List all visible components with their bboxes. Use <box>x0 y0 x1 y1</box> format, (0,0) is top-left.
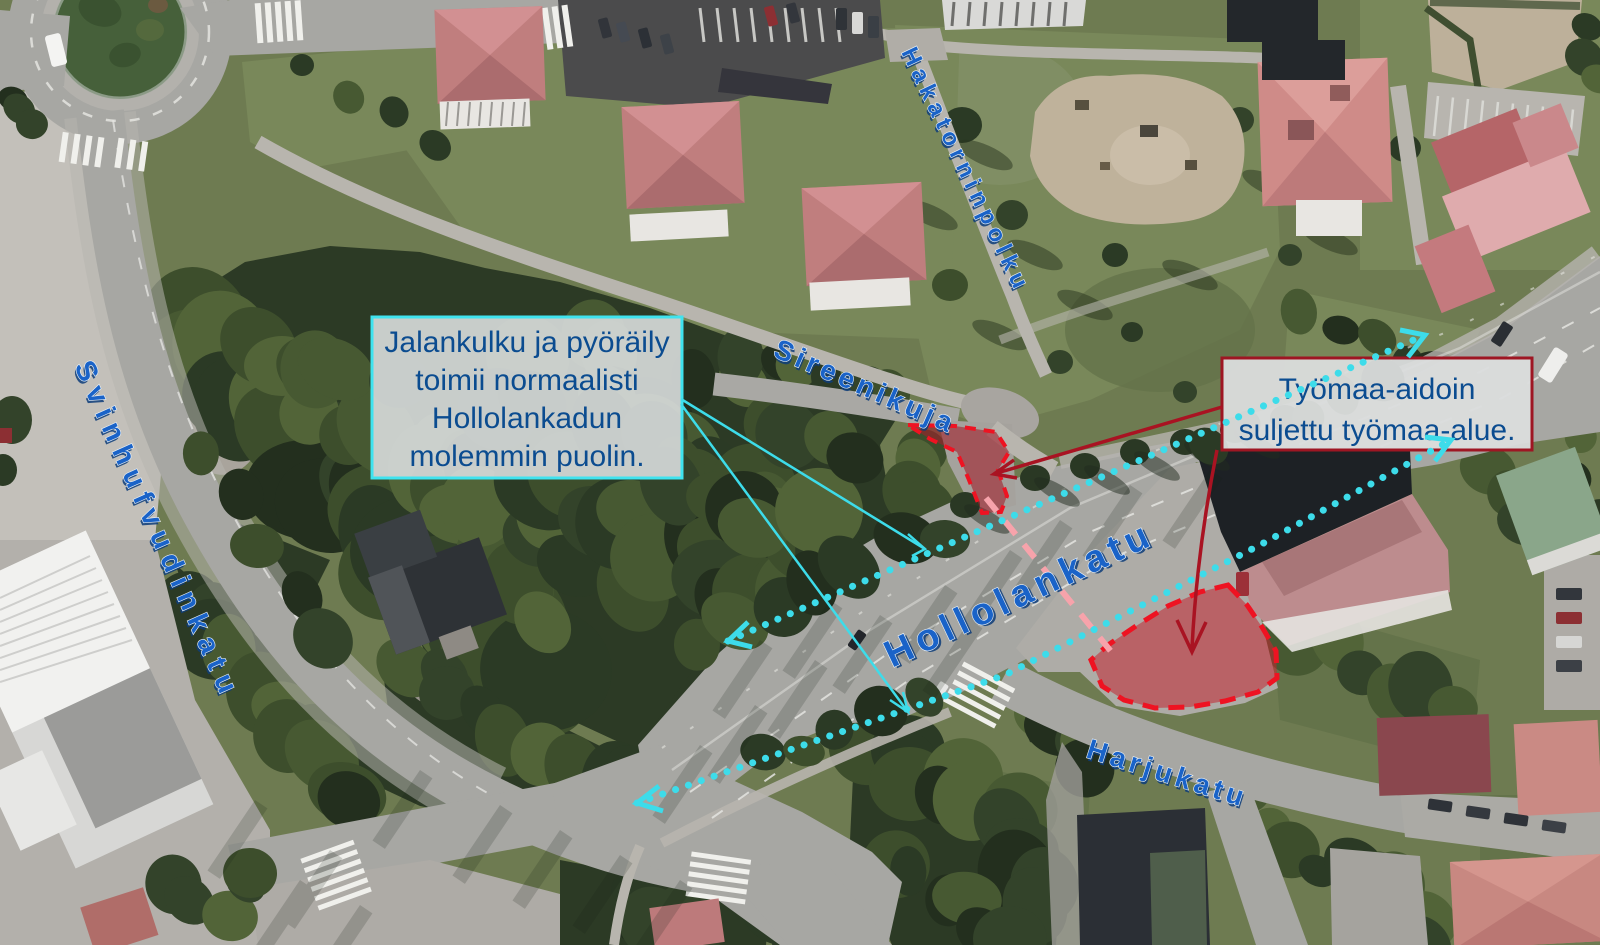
svg-text:toimii normaalisti: toimii normaalisti <box>415 364 638 397</box>
svg-text:suljettu työmaa-alue.: suljettu työmaa-alue. <box>1239 414 1516 447</box>
svg-text:Jalankulku ja pyöräily: Jalankulku ja pyöräily <box>384 326 669 359</box>
svg-text:Hollolankadun: Hollolankadun <box>432 402 622 435</box>
svg-text:molemmin puolin.: molemmin puolin. <box>409 440 644 473</box>
svg-text:Työmaa-aidoin: Työmaa-aidoin <box>1279 373 1476 406</box>
